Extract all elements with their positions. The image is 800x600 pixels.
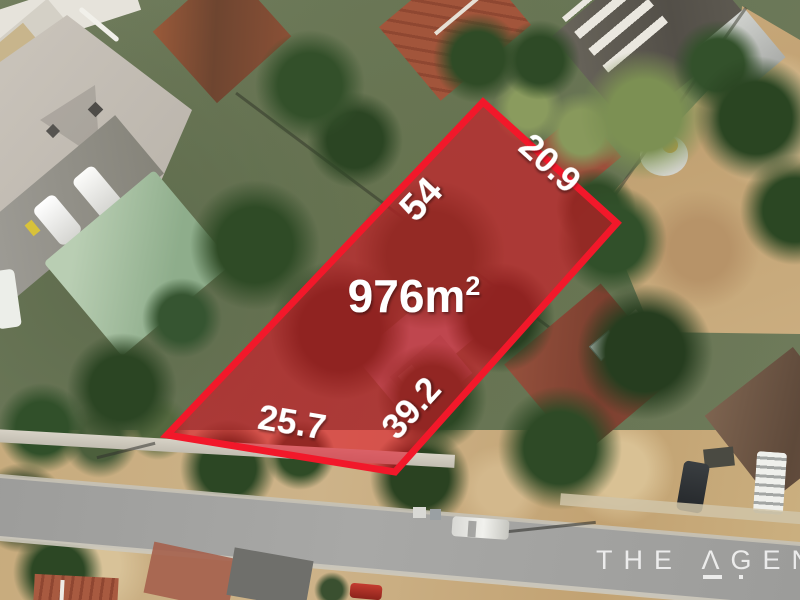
watermark-dot (739, 575, 743, 579)
lot-area-label: 976m2 (348, 270, 481, 322)
watermark-underscore (703, 575, 722, 579)
listing-aerial-image: 976m2 54 20.9 39.2 25.7 THE ΛGENC (0, 0, 800, 600)
lot-boundary-overlay: 976m2 54 20.9 39.2 25.7 (0, 0, 800, 600)
watermark-the-agency: THE ΛGENC (596, 545, 800, 576)
